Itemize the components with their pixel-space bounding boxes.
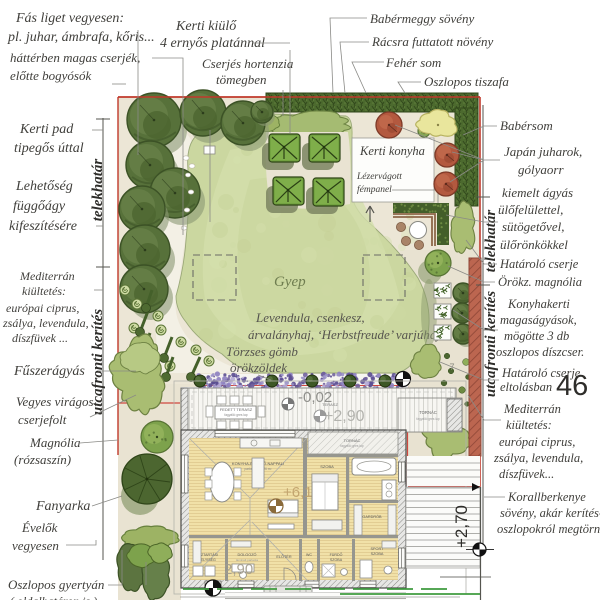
svg-text:függőágy: függőágy — [13, 199, 66, 214]
svg-text:fagyálló gres lap: fagyálló gres lap — [224, 413, 247, 417]
svg-text:háttérben magas cserjék,: háttérben magas cserjék, — [10, 50, 140, 65]
svg-text:gólyaorr: gólyaorr — [518, 162, 564, 177]
svg-text:Rácsra futtatott növény: Rácsra futtatott növény — [371, 34, 494, 49]
svg-text:Fás liget vegyesen:: Fás liget vegyesen: — [15, 11, 124, 26]
svg-text:TORNÁC: TORNÁC — [344, 438, 361, 443]
svg-text:Mediterrán: Mediterrán — [503, 402, 561, 416]
svg-text:Kerti kiülő: Kerti kiülő — [175, 19, 237, 34]
svg-text:Lézervágott: Lézervágott — [356, 172, 402, 182]
svg-text:FEDETT TERASZ: FEDETT TERASZ — [220, 407, 253, 412]
svg-text:sütögetővel,: sütögetővel, — [502, 219, 564, 234]
svg-text:sövény, akár kerítés-: sövény, akár kerítés- — [500, 506, 600, 520]
svg-text:telekhatár: telekhatár — [90, 159, 106, 222]
svg-text:kiültetés:: kiültetés: — [506, 418, 552, 432]
svg-text:Kerti pad: Kerti pad — [19, 122, 74, 137]
svg-text:Konyhakerti: Konyhakerti — [507, 297, 570, 311]
svg-text:előtte bogyósók: előtte bogyósók — [10, 68, 91, 83]
svg-text:európai ciprus,: európai ciprus, — [6, 301, 79, 315]
svg-text:utcafronti kerítés: utcafronti kerítés — [483, 291, 499, 397]
svg-text:Határoló cserje: Határoló cserje — [501, 366, 581, 380]
svg-text:pl. juhar, ámbrafa, kőris...: pl. juhar, ámbrafa, kőris... — [7, 30, 155, 45]
svg-text:+6,1: +6,1 — [283, 484, 313, 501]
svg-text:+2,70: +2,70 — [452, 505, 471, 548]
svg-text:Japán juharok,: Japán juharok, — [504, 144, 582, 159]
svg-text:SZOBA: SZOBA — [371, 552, 384, 556]
svg-text:Gyep: Gyep — [274, 274, 306, 290]
svg-text:4 ernyős platánnal: 4 ernyős platánnal — [160, 36, 265, 51]
svg-text:DOLGOZÓ: DOLGOZÓ — [238, 552, 257, 557]
svg-text:fémpanel: fémpanel — [357, 184, 392, 195]
svg-text:Babérsom: Babérsom — [500, 118, 553, 133]
svg-text:SZOBA: SZOBA — [330, 558, 343, 562]
svg-text:fagyálló gres lap: fagyálló gres lap — [416, 417, 439, 421]
svg-text:FÜRDŐ: FÜRDŐ — [330, 552, 343, 557]
svg-text:Kerti konyha: Kerti konyha — [359, 144, 425, 158]
svg-text:Törzses gömb: Törzses gömb — [226, 344, 298, 359]
svg-text:Lehetőség: Lehetőség — [15, 179, 73, 194]
svg-text:zsálya, levendula,: zsálya, levendula, — [493, 451, 583, 465]
svg-text:Határoló cserje: Határoló cserje — [499, 257, 579, 271]
svg-text:Fehér som: Fehér som — [385, 55, 441, 70]
svg-text:Fűszerágyás: Fűszerágyás — [13, 364, 85, 379]
svg-text:2,90: 2,90 — [224, 561, 253, 578]
svg-text:árvalányhaj, ‘Herbstfreude’ va: árvalányhaj, ‘Herbstfreude’ varjúháj — [248, 327, 440, 342]
svg-text:Vegyes virágos: Vegyes virágos — [16, 394, 94, 409]
svg-text:( oldalhatáron is ): ( oldalhatáron is ) — [10, 594, 97, 600]
svg-text:(rózsaszín): (rózsaszín) — [14, 452, 71, 467]
svg-text:Levendula, csenkesz,: Levendula, csenkesz, — [255, 310, 365, 325]
svg-text:oszlopokról megtörne: oszlopokról megtörne — [497, 522, 600, 536]
svg-text:tömegben: tömegben — [216, 72, 267, 87]
svg-text:Évelők: Évelők — [21, 520, 58, 535]
svg-text:WC: WC — [306, 553, 312, 557]
svg-text:TORNÁC: TORNÁC — [419, 410, 437, 415]
svg-text:fagyálló gres lap: fagyálló gres lap — [340, 444, 363, 448]
svg-text:telekhatár: telekhatár — [483, 210, 499, 273]
svg-text:Babérmeggy sövény: Babérmeggy sövény — [370, 11, 475, 26]
svg-text:Korallberkenye: Korallberkenye — [507, 490, 586, 504]
svg-text:Mediterrán: Mediterrán — [19, 269, 75, 283]
svg-text:tipegős úttal: tipegős úttal — [14, 141, 84, 156]
svg-text:oszlopos díszcser.: oszlopos díszcser. — [496, 345, 584, 359]
svg-text:kiültetés:: kiültetés: — [22, 284, 66, 298]
svg-text:mögötte 3 db: mögötte 3 db — [504, 329, 569, 343]
svg-text:európai ciprus,: európai ciprus, — [499, 435, 575, 449]
svg-text:díszfüvek...: díszfüvek... — [499, 467, 554, 481]
svg-text:díszfüvek ...: díszfüvek ... — [12, 331, 68, 345]
svg-text:örökzöldek: örökzöldek — [230, 360, 287, 375]
svg-text:Fanyarka: Fanyarka — [35, 499, 90, 514]
svg-text:kiemelt ágyás: kiemelt ágyás — [502, 185, 573, 200]
svg-text:Magnólia: Magnólia — [29, 435, 81, 450]
svg-text:SZOBA: SZOBA — [320, 464, 334, 469]
svg-text:+2,90: +2,90 — [324, 408, 365, 425]
svg-text:Cserjés hortenzia: Cserjés hortenzia — [202, 56, 294, 71]
svg-text:GARDRÓB: GARDRÓB — [362, 514, 382, 519]
svg-text:eltolásban: eltolásban — [500, 380, 552, 394]
svg-text:TERASZ: TERASZ — [322, 402, 338, 407]
svg-text:cserjefolt: cserjefolt — [18, 412, 67, 427]
svg-text:ülőfelülettel,: ülőfelülettel, — [498, 202, 563, 217]
svg-text:magaságyások,: magaságyások, — [500, 313, 577, 327]
svg-text:ELŐTÉR: ELŐTÉR — [276, 554, 291, 559]
svg-text:Oszlopos tiszafa: Oszlopos tiszafa — [424, 74, 509, 89]
svg-text:zsálya, levendula,: zsálya, levendula, — [2, 316, 89, 330]
svg-text:ülőrönkökkel: ülőrönkökkel — [500, 237, 568, 252]
svg-text:kifeszítésére: kifeszítésére — [9, 219, 77, 234]
svg-text:Örökz. magnólia: Örökz. magnólia — [498, 274, 582, 289]
svg-text:Oszlopos gyertyán: Oszlopos gyertyán — [8, 577, 104, 592]
svg-text:vegyesen: vegyesen — [12, 538, 59, 553]
